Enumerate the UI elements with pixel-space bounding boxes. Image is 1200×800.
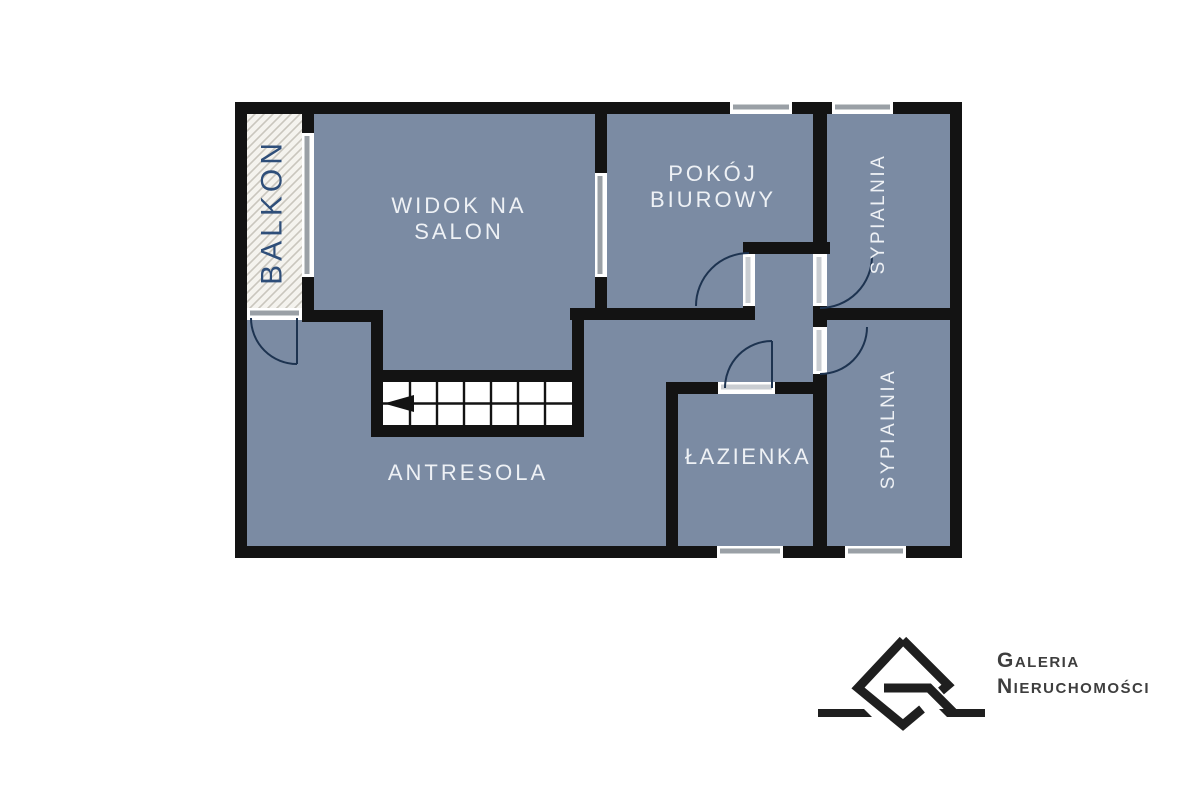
agency-logo-text: Galeria Nieruchomości bbox=[997, 648, 1150, 700]
staircase bbox=[383, 382, 572, 425]
agency-logo-mark bbox=[818, 640, 985, 725]
label-office-line1: POKÓJ bbox=[650, 161, 776, 187]
door-bedroom-top bbox=[813, 254, 827, 306]
label-office: POKÓJ BIUROWY bbox=[650, 161, 776, 213]
wall-hall-top bbox=[570, 308, 755, 320]
balcony-door-threshold bbox=[247, 308, 302, 320]
wall-bathroom-left bbox=[666, 382, 678, 546]
label-office-line2: BIUROWY bbox=[650, 187, 776, 213]
label-salon-view-line1: WIDOK NA bbox=[391, 193, 526, 219]
wall-salon-bottom-left bbox=[302, 310, 383, 322]
wall-outer-right bbox=[950, 102, 962, 558]
window-bedroom-bottom bbox=[845, 546, 906, 558]
floorplan-page: BALKON WIDOK NA SALON POKÓJ BIUROWY SYPI… bbox=[0, 0, 1200, 800]
window-office-top bbox=[730, 102, 792, 114]
label-bathroom: ŁAZIENKA bbox=[685, 444, 811, 470]
wall-salon-office-upper bbox=[595, 114, 607, 173]
wall-between-bedrooms bbox=[813, 308, 950, 320]
door-bathroom bbox=[718, 382, 775, 394]
wall-bathroom-bedroom bbox=[813, 374, 827, 546]
label-bedroom-bottom: SYPIALNIA bbox=[878, 369, 900, 490]
window-salon-office-interior bbox=[595, 173, 607, 277]
wall-office-door-stub bbox=[743, 306, 755, 320]
wall-balcony-top bbox=[302, 114, 314, 133]
label-salon-view-line2: SALON bbox=[391, 219, 526, 245]
window-bedroom-top bbox=[832, 102, 893, 114]
label-bedroom-top: SYPIALNIA bbox=[868, 154, 890, 275]
wall-stairwell-right bbox=[572, 308, 584, 437]
wall-stairwell-top bbox=[371, 370, 584, 382]
agency-name-line2: Nieruchomości bbox=[997, 674, 1150, 700]
label-balcony: BALKON bbox=[254, 139, 289, 285]
door-bedroom-bottom bbox=[813, 327, 827, 374]
door-office bbox=[743, 254, 755, 306]
window-bathroom-bottom bbox=[717, 546, 783, 558]
label-mezzanine: ANTRESOLA bbox=[388, 460, 548, 486]
wall-outer-left bbox=[235, 102, 247, 558]
window-balcony-salon bbox=[302, 133, 314, 277]
label-salon-view: WIDOK NA SALON bbox=[391, 193, 526, 245]
wall-stairwell-bottom bbox=[371, 425, 584, 437]
agency-name-line1: Galeria bbox=[997, 648, 1150, 674]
wall-office-bedroom bbox=[813, 114, 827, 254]
